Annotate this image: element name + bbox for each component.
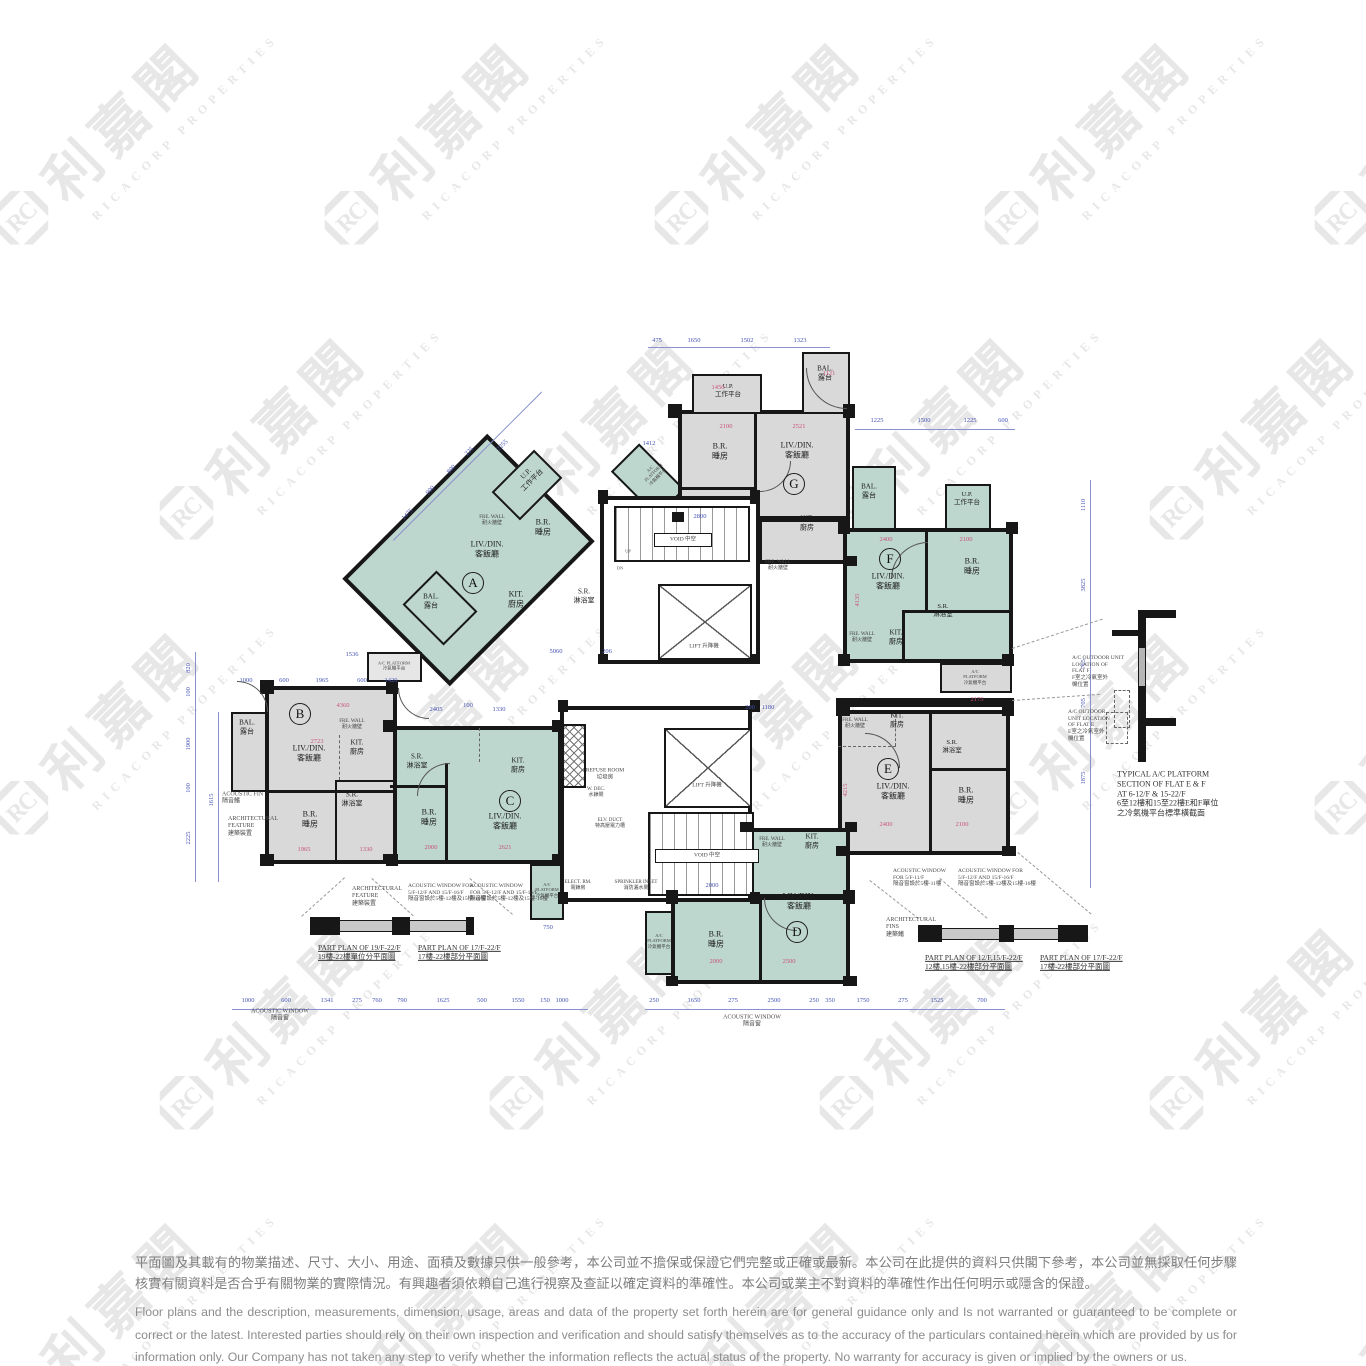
fire-wall-label: FRE. WALL耐火牆壁 [339,719,364,731]
dim-line [218,712,219,882]
dimension-label: 275 [898,998,908,1005]
room-label: KIT.廚房 [805,832,819,849]
dimension-label: 760 [372,998,382,1005]
part-plan-label: PART PLAN OF 19/F-22/F19樓-22樓單位分平面圖 [318,943,401,961]
room-label: S.R.淋浴室 [407,752,428,769]
dimension-label: 1330 [493,707,506,714]
section-caption: TYPICAL A/C PLATFORMSECTION OF FLAT E & … [1117,770,1218,819]
room-label: S.R.淋浴室 [342,790,363,807]
room-label: KIT.廚房 [350,738,364,755]
dimension-label: 2100 [956,822,969,829]
dimension-label: 1450 [712,385,725,392]
room-label: KIT.廚房 [800,514,814,531]
dimension-label: 475 [652,338,662,345]
dimension-label: 1330 [360,847,373,854]
dimension-label: 2521 [793,424,806,431]
part-plan-bar-left-block-2 [392,917,410,935]
core-label: SPRINKLER INLET消防灑水閘 [615,880,658,892]
dimension-label: 1965 [298,847,311,854]
room-label: B.R.睡房 [421,807,437,827]
dimension-label: 1110 [1081,499,1088,512]
dimension-label: 790 [397,998,407,1005]
wall-pillar [740,822,752,832]
wall-pillar [552,720,564,732]
unit-c-main [388,726,562,864]
dimension-label: 600 [357,678,367,685]
door-arc [398,688,429,719]
unit-badge-c: C [499,790,521,812]
dimension-label: 1412 [643,441,656,448]
fire-wall-label: FRE. WALL耐火牆壁 [849,632,874,644]
part-plan-bar-left-block-1 [310,917,340,935]
core-label: ELV. DUCT特高壓電力槽 [595,818,625,830]
wall-pillar [260,680,274,694]
fire-wall-label: FRE. WALL耐火牆壁 [759,837,784,849]
dimension-label: 1615 [209,794,216,807]
stair-label: UP [625,548,631,553]
dimension-label: 1225 [871,418,884,425]
unit-b-main [265,686,397,864]
dimension-label: 3825 [1081,579,1088,592]
floor-plan-page: RC利嘉閣RICACORP PROPERTIESRC利嘉閣RICACORP PR… [0,0,1366,1366]
room-label: S.R.淋浴室 [574,587,595,604]
unit-badge-g: G [783,473,805,495]
room-label: KIT.廚房 [890,711,904,728]
room-label: LIV./DIN.客飯廳 [877,781,910,801]
dimension-label: 2100 [960,537,973,544]
dimension-label: 1536 [346,652,359,659]
room-label: BAL.露台 [239,718,255,735]
wall-pillar [750,654,760,664]
core-label: ELECT. RM.電錶房 [565,880,592,892]
wall-pillar [1002,654,1014,666]
unit-e-main [838,710,1010,855]
b-partition [335,780,337,862]
core-label: REFUSE ROOM垃圾房 [586,767,624,780]
dimension-label: 2400 [880,822,893,829]
unit-badge-b: B [289,703,311,725]
wall-pillar [558,700,568,712]
void-label: VOID 中空 [694,853,720,860]
unit-badge-e: E [877,758,899,780]
dimension-label: 200 [745,705,755,712]
dimension-label: 5060 [550,649,563,656]
core-label: W. DEC.水錶閘 [587,787,605,799]
dimension-label: 1121 [823,371,836,378]
dimension-label: 4360 [337,703,350,710]
dimension-label: 1500 [918,418,931,425]
wall-pillar [666,976,678,986]
wall-pillar [598,654,608,664]
e-partition [932,768,1008,771]
room-label: B.R.睡房 [708,929,724,949]
dim-line [648,347,830,348]
wall-pillar [1002,706,1014,716]
dimension-label: 100 [186,687,193,697]
dimension-label: 600 [279,678,289,685]
part-plan-bar-right-block-3 [1058,925,1088,942]
dimension-label: 1625 [437,998,450,1005]
section-flange-left [1112,630,1140,636]
dimension-label: 4135 [855,594,862,607]
part-plan-label: PART PLAN OF 17/F-22/F17樓-22樓部分平面圖 [1040,953,1123,971]
annotation: ACOUSTIC WINDOW隔音窗 [251,1009,309,1024]
part-plan-bar-right-block-2 [999,925,1014,942]
wall-pillar [1002,846,1016,856]
dimension-label: 275 [352,998,362,1005]
dimension-label: 1420 [385,678,398,685]
dimension-label: 1875 [1081,772,1088,785]
dimension-label: 600 [998,418,1008,425]
fire-wall-label: FRE. WALL耐火牆壁 [479,515,504,527]
dimension-label: 2000 [710,959,723,966]
dimension-label: 2621 [499,845,512,852]
d-partition [759,896,762,982]
dimension-label: 1180 [762,705,775,712]
room-label: BAL.露台 [423,592,439,609]
lift-label: LIFT 升降機 [692,783,721,790]
disclaimer-english: Floor plans and the description, measure… [135,1301,1237,1366]
unit-badge-d: D [786,921,808,943]
wall-pillar [843,976,857,986]
section-flange-top [1146,610,1176,618]
annotation: ACOUSTIC WINDOWFOR 5/F-11/F隔音窗設於5樓-11樓 [893,868,946,888]
wall-pillar [838,522,850,534]
dim-line [645,1009,1005,1010]
wall-band-ef [836,698,1014,707]
annotation: ACOUSTIC WINDOWFOR 5/F-12/F AND 15/F-16/… [470,883,548,903]
dimension-label: 1525 [931,998,944,1005]
lift-label: LIFT 升降機 [689,644,718,651]
part-plan-label: PART PLAN OF 17/F-22/F17樓-22樓部分平面圖 [418,943,501,961]
disclaimer-chinese: 平面圖及其載有的物業描述、尺寸、大小、用途、面積及數據只供一般參考，本公司並不擔… [135,1252,1237,1294]
dimension-label: 1000 [556,998,569,1005]
dimension-label: 206 [602,649,612,656]
dimension-label: 2100 [720,424,733,431]
dimension-label: 250 [649,998,659,1005]
dimension-label: 2225 [186,832,193,845]
room-label: S.R.淋浴室 [933,603,953,619]
wall-pillar [845,822,857,832]
wall-pillar [383,854,393,864]
dimension-label: 350 [825,998,835,1005]
dimension-label: 2405 [430,707,443,714]
room-label: U.P.工作平台 [954,491,980,507]
dim-line [855,429,1015,430]
dimension-label: 2500 [768,998,781,1005]
room-label: KIT.廚房 [508,589,524,609]
e-partition [929,712,932,853]
wall-pillar [672,512,684,522]
unit-badge-a: A [462,572,484,594]
room-label: B.R.睡房 [712,441,728,461]
dimension-label: 765 [1081,659,1088,669]
room-label: B.R.睡房 [302,809,318,829]
wall-pillar [666,890,678,904]
b-partition [337,780,395,782]
disclaimer: 平面圖及其載有的物業描述、尺寸、大小、用途、面積及數據只供一般參考，本公司並不擔… [135,1252,1237,1366]
stair-label: DN [617,565,624,570]
g-partition [754,414,757,488]
wall-pillar [836,706,850,716]
dimension-label: 1650 [688,998,701,1005]
wall-pillar [558,892,568,904]
kitchen-dash [479,728,480,762]
wall-pillar [668,404,682,418]
part-plan-label: PART PLAN OF 12/F,15/F-22/F12樓,15樓-22樓部分… [925,953,1023,971]
dimension-label: 2000 [706,883,719,890]
fire-wall-label: FRE. WALL耐火牆壁 [765,560,790,572]
leader-dash [301,877,345,917]
dimension-label: 275 [728,998,738,1005]
room-label: S.R.淋浴室 [942,739,962,755]
dimension-label: 820 [186,663,193,673]
wall-pillar [552,854,564,866]
g-partition [680,487,757,490]
wall-pillar [383,720,395,732]
dimension-label: 2500 [783,959,796,966]
dimension-label: 500 [477,998,487,1005]
dimension-label: 1750 [857,998,870,1005]
unit-badge-f: F [879,548,901,570]
dimension-label: 600 [281,998,291,1005]
section-shaft-insert [1139,648,1145,686]
dimension-label: 2800 [694,514,707,521]
room-label: B.R.睡房 [535,517,551,537]
b-partition [267,790,395,793]
ac-platform-label: A/CPLATFORM冷氣機平台 [963,669,987,685]
void-label: VOID 中空 [670,537,696,544]
wall-pillar [1006,522,1018,534]
dimension-label: 2175 [971,697,984,704]
room-label: BAL.露台 [861,482,877,499]
dimension-label: 1502 [741,338,754,345]
dimension-label: 1900 [186,738,193,751]
wall-pillar [836,846,850,856]
dimension-label: 2400 [880,537,893,544]
dimension-label: 750 [543,925,553,932]
kitchen-dash [339,735,340,780]
floor-plan-drawing: LIV./DIN.客飯廳B.R.睡房KIT.廚房S.R.淋浴室BAL.露台U.P… [0,0,1366,1366]
dimension-label: 1225 [964,418,977,425]
dimension-label: 150 [540,998,550,1005]
room-label: KIT.廚房 [889,628,903,645]
room-label: B.R.睡房 [964,556,980,576]
dimension-label: 1341 [321,998,334,1005]
dimension-label: 700 [977,998,987,1005]
annotation: ACOUSTIC WINDOW FOR5/F-12/F AND 15/F-16/… [958,868,1036,888]
wall-pillar [260,854,274,866]
dimension-label: 4215 [843,784,850,797]
room-label: LIV./DIN.客飯廳 [781,440,814,460]
ac-platform-label: A/C PLATFORM冷氣機平台 [378,661,410,672]
section-flange-bottom [1146,718,1176,726]
annotation: ACOUSTIC FIN隔音鰭 [222,792,263,807]
room-label: LIV./DIN.客飯廳 [872,571,905,591]
ac-platform-label: A/CPLATFORM冷氣機平台 [647,933,671,949]
room-label: LIV./DIN.客飯廳 [783,891,816,911]
room-label: LIV./DIN.客飯廳 [471,539,504,559]
dimension-label: 1650 [688,338,701,345]
dimension-label: 250 [809,998,819,1005]
dimension-label: 2000 [425,845,438,852]
part-plan-bar-left-block-3 [466,917,474,935]
lift-lower [664,728,752,808]
refuse-shaft [562,724,586,788]
wall-pillar [843,890,855,904]
dimension-label: 1550 [512,998,525,1005]
wall-pillar [838,654,850,666]
dimension-label: 1000 [242,998,255,1005]
room-label: B.R.睡房 [958,785,974,805]
annotation: A/C OUTDOORUNIT LOCATIONOF FLAT EE室之冷氣室外… [1068,709,1110,743]
annotation: ARCHITECTURALFEATURE建築裝置 [228,816,278,838]
annotation: ARCHITECTURALFEATURE建築裝置 [352,886,402,908]
dim-line [195,652,196,882]
dimension-label: 705 [1081,698,1088,708]
fire-wall-label: FRE. WALL耐火牆壁 [842,718,867,730]
wall-pillar [750,490,760,504]
dimension-label: 1965 [316,678,329,685]
dimension-label: 100 [186,783,193,793]
annotation: ACOUSTIC WINDOW隔音窗 [723,1015,781,1030]
f-partition [905,610,1011,613]
room-label: KIT.廚房 [511,756,525,773]
dimension-label: 1000 [240,678,253,685]
annotation: ARCHITECTURALFINS建築鰭 [886,917,936,939]
dimension-label: 1323 [794,338,807,345]
dimension-label: 2723 [311,739,324,746]
dimension-label: 100 [463,703,473,710]
room-label: LIV./DIN.客飯廳 [489,811,522,831]
room-label: LIV./DIN.客飯廳 [293,743,326,763]
wall-pillar [845,556,857,566]
wall-pillar [598,490,608,504]
